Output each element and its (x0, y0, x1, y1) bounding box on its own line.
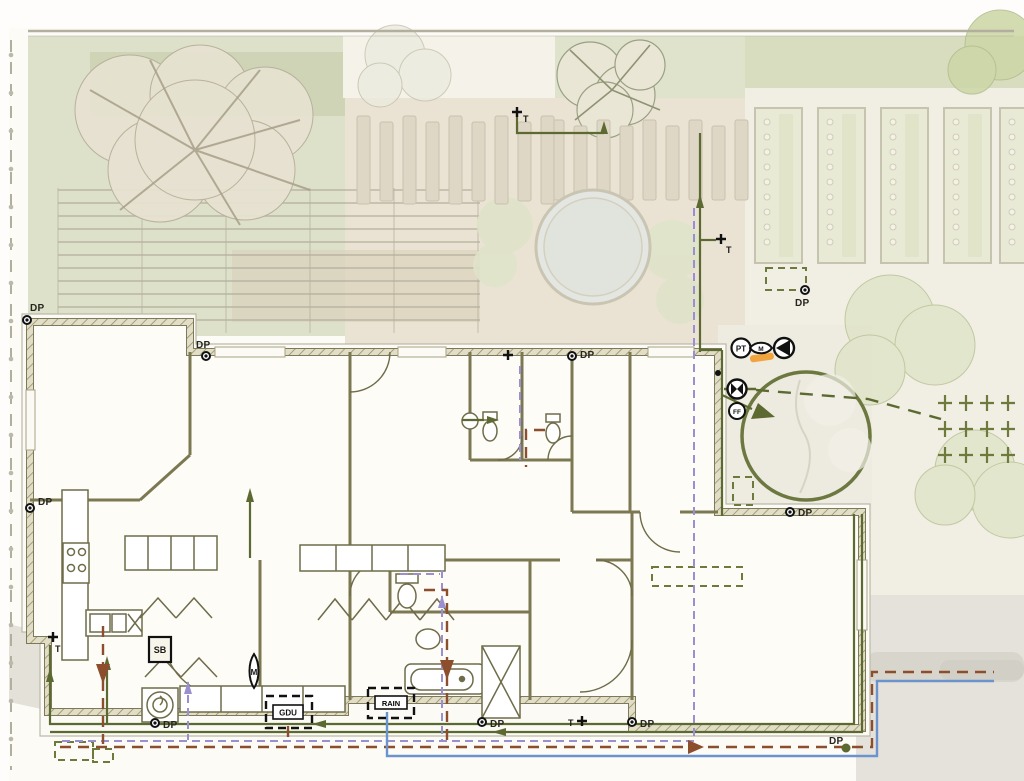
downpipe-label: DP (580, 350, 595, 361)
pond (536, 190, 650, 304)
downpipe-label: DP (196, 340, 211, 351)
vegetable-beds (755, 108, 1024, 263)
downpipe-label: DP (38, 497, 53, 508)
meter-label: M (758, 346, 763, 353)
downpipe-label: DP (795, 298, 810, 309)
downpipe-label: DP (490, 719, 505, 730)
downpipe-label: DP (30, 303, 45, 314)
stepping-pavers (357, 116, 748, 204)
downpipe-marker: DP (568, 350, 595, 361)
toilet (398, 584, 416, 608)
stove (63, 543, 89, 583)
basin (416, 629, 440, 649)
downpipe-label: DP (829, 736, 844, 747)
laundry-meter-label: M (251, 668, 258, 677)
tap-label: T (55, 644, 61, 654)
driveway (856, 595, 1024, 781)
downpipe-label: DP (163, 720, 178, 731)
first-flush-label: FF (733, 409, 741, 416)
rain-label: RAIN (382, 699, 400, 708)
tap-label: T (568, 718, 574, 728)
laundry-meter: M (250, 654, 259, 688)
sb-label: SB (154, 645, 167, 655)
gdu-label: GDU (279, 709, 297, 718)
tap-label: T (726, 245, 732, 255)
sb-unit: SB (149, 637, 171, 662)
downpipe-label: DP (798, 508, 813, 519)
site-plan-drawing: PT M FF M GDU RAIN SB DPDPDPDPDPDPDPDPDP… (0, 0, 1024, 781)
pt-label: PT (736, 345, 746, 354)
downpipe-label: DP (640, 719, 655, 730)
toilet-cistern (396, 574, 418, 583)
tap-label: T (523, 114, 529, 124)
landscape-plumbing-plan: PT M FF M GDU RAIN SB DPDPDPDPDPDPDPDPDP… (0, 0, 1024, 781)
